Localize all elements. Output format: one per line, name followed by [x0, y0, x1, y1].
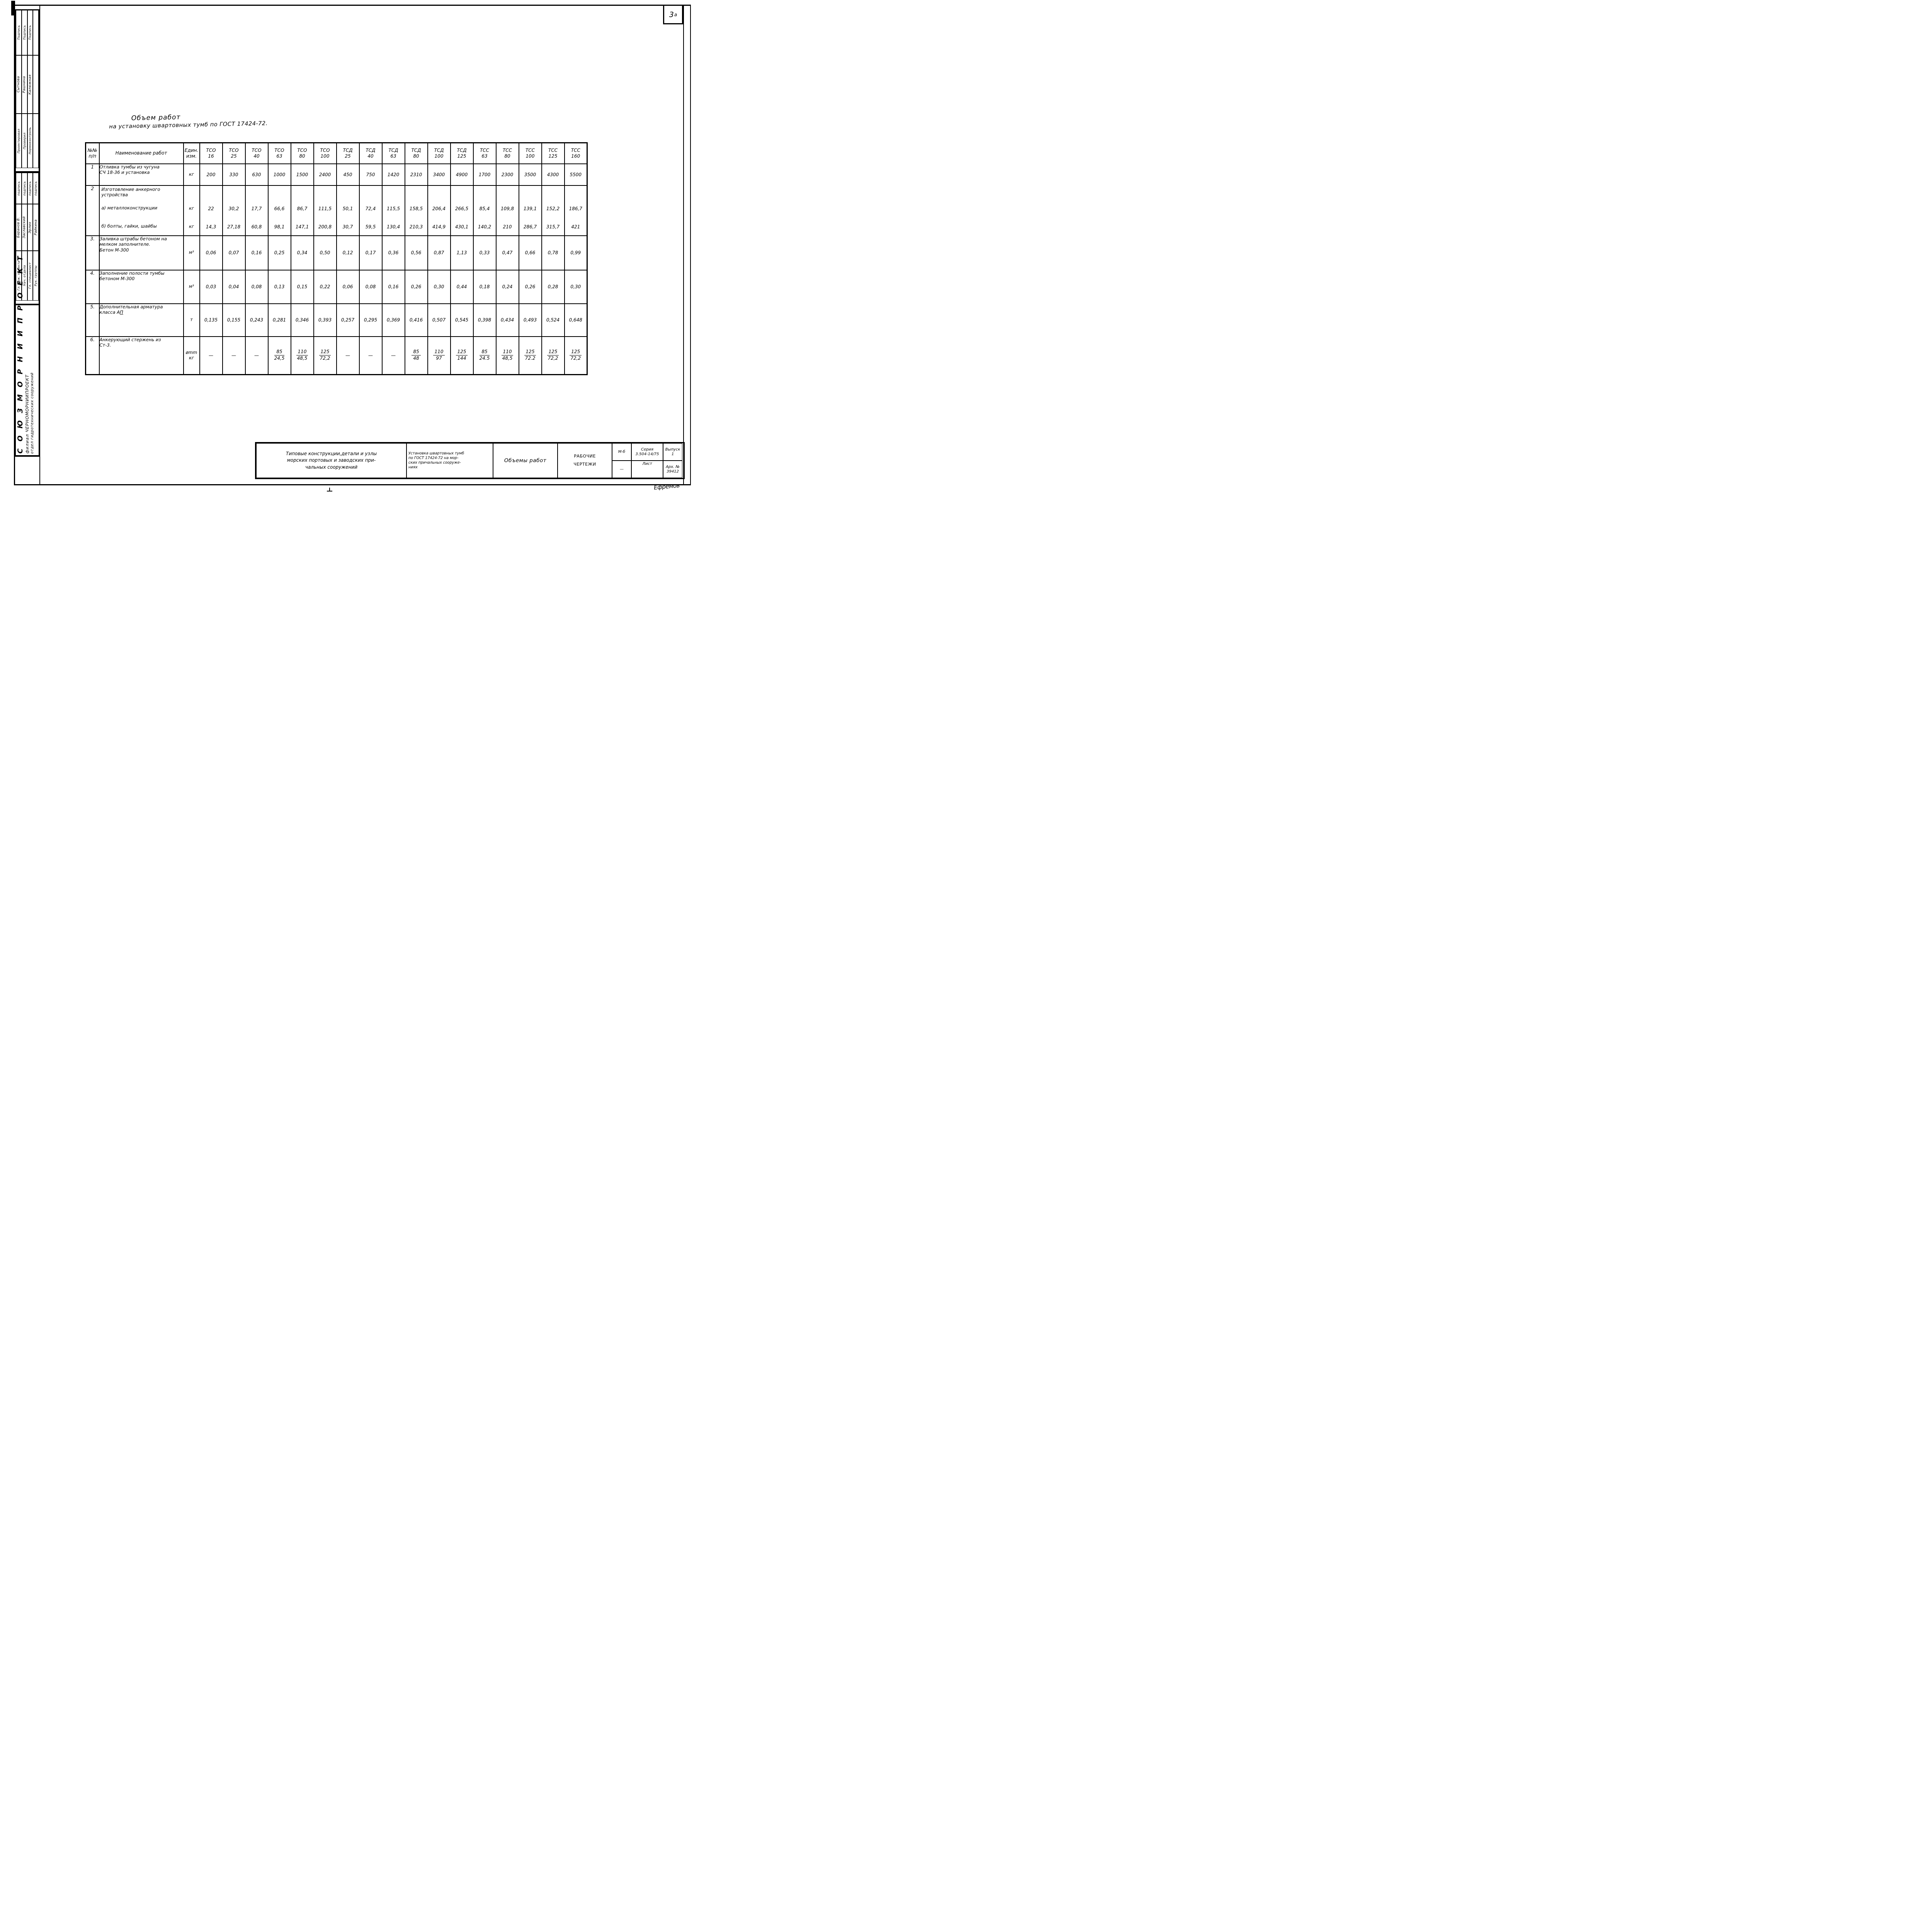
- fraction-denominator: 144: [456, 355, 468, 361]
- row2-value-wrap: 139,1286,7: [519, 187, 541, 235]
- table-cell: 0,07: [223, 236, 245, 270]
- cell-value: 27,18: [223, 224, 245, 230]
- signoff-name: Райкина: [34, 219, 38, 235]
- table-cell: —: [245, 337, 268, 375]
- header-type: ТСД80: [405, 143, 428, 164]
- fraction-value: 12572,2: [570, 349, 582, 361]
- fraction-numerator: 110: [433, 349, 445, 355]
- cell-value: 17,7: [246, 206, 268, 211]
- header-type: ТСД63: [382, 143, 405, 164]
- signoff-name: Заславский: [22, 216, 26, 238]
- row2-value-wrap: 72,459,5: [360, 187, 382, 235]
- table-cell: 0,26: [405, 270, 428, 304]
- cell-value: 130,4: [383, 224, 405, 230]
- table-row: 2Изготовление анкерногоустройстваа) мета…: [86, 185, 587, 236]
- fraction-value: 8524,5: [274, 349, 285, 361]
- row-name: Изготовление анкерногоустройстваа) метал…: [99, 185, 184, 236]
- row2-value-wrap: 17,760,8: [246, 187, 268, 235]
- table-row: 5.Дополнительная арматуракласса АПт0,135…: [86, 304, 587, 337]
- table-cell: 2400: [314, 164, 337, 185]
- table-cell: 0,155: [223, 304, 245, 337]
- signoff-role-cell: Гл. специалист: [27, 251, 33, 301]
- stamp-object: Установка швартовных тумбпо ГОСТ 17424-7…: [406, 443, 493, 478]
- cell-value: 109,8: [497, 206, 519, 211]
- table-cell: —: [382, 337, 405, 375]
- row2-value-wrap: 158,5210,3: [405, 187, 427, 235]
- row2-value-wrap: 85,4140,2: [474, 187, 496, 235]
- table-cell: —: [337, 337, 359, 375]
- sheet-label-text: Лист: [642, 462, 652, 466]
- cell-value: 200,8: [314, 224, 336, 230]
- underlined-suffix: П: [120, 310, 123, 315]
- cell-value: 266,5: [451, 206, 473, 211]
- row2-value-wrap: 86,7147,1: [291, 187, 313, 235]
- fraction-denominator: 48,5: [502, 355, 514, 361]
- row-name: Анкерующий стержень изСт-3.: [99, 337, 184, 375]
- header-type: ТСС63: [473, 143, 496, 164]
- table-cell: 0,369: [382, 304, 405, 337]
- page-number-suffix: а: [674, 12, 677, 17]
- cell-value: 286,7: [519, 224, 541, 230]
- table-cell: 0,346: [291, 304, 314, 337]
- frame-bottom: [14, 484, 691, 485]
- table-cell: 0,12: [337, 236, 359, 270]
- header-type: ТСС100: [519, 143, 542, 164]
- fraction-value: 11097: [433, 349, 445, 361]
- header-type: ТСО25: [223, 143, 245, 164]
- fraction-numerator: 125: [570, 349, 582, 355]
- row-number: 6.: [86, 337, 99, 375]
- signoff-name: Рашнина: [22, 76, 26, 93]
- fraction-numerator: 85: [480, 349, 490, 355]
- table-cell: 0,03: [200, 270, 223, 304]
- header-num: №№п/п: [86, 143, 99, 164]
- series-value-text: 3.504-14/75: [635, 452, 659, 457]
- signoff-role: Гл. специалист: [28, 262, 32, 289]
- row-unit: ømmкг: [184, 337, 200, 375]
- signoff-role: Рук. группы: [34, 265, 37, 286]
- strip-right-border: [39, 5, 40, 485]
- cell-value: 206,4: [428, 206, 450, 211]
- table-cell: 72,459,5: [359, 185, 382, 236]
- table-cell: 0,16: [382, 270, 405, 304]
- table-cell: 0,36: [382, 236, 405, 270]
- sub-unit: кг: [184, 206, 199, 211]
- fraction-numerator: 110: [502, 349, 514, 355]
- text-line: ских причальных сооруже-: [408, 461, 461, 465]
- header-unit: Един.изм.: [184, 143, 200, 164]
- signoff-sign: Подпись: [28, 25, 32, 40]
- table-cell: 152,2315,7: [542, 185, 565, 236]
- table-cell: 0,87: [428, 236, 451, 270]
- row2-name-wrap: Изготовление анкерногоустройстваа) метал…: [100, 186, 183, 234]
- row-name: Заливка штрабы бетоном намелком заполнит…: [99, 236, 184, 270]
- organization-department: отдел гидротехнических сооружений: [30, 372, 34, 454]
- strip-divider: [15, 456, 39, 457]
- cell-value: 66,6: [269, 206, 291, 211]
- cell-value: 98,1: [269, 224, 291, 230]
- stamp-issue: Выпуск 1: [663, 443, 682, 461]
- fraction-value: 12572,2: [547, 349, 559, 361]
- signoff-role-cell: Нормоконтроль: [27, 114, 33, 168]
- fraction-value: 8524.5: [480, 349, 490, 361]
- table-cell: 115,5130,4: [382, 185, 405, 236]
- cell-value: 30,7: [337, 224, 359, 230]
- table-cell: 0,22: [314, 270, 337, 304]
- page-number-box: 3а: [663, 6, 683, 24]
- row-number: 5.: [86, 304, 99, 337]
- table-cell: 206,4414,9: [428, 185, 451, 236]
- table-row: 3.Заливка штрабы бетоном намелком заполн…: [86, 236, 587, 270]
- cell-value: 315,7: [542, 224, 564, 230]
- table-cell: 139,1286,7: [519, 185, 542, 236]
- table-cell: 266,5430,1: [451, 185, 473, 236]
- table-cell: 50,130,7: [337, 185, 359, 236]
- table-cell: 0,30: [428, 270, 451, 304]
- row2-value-wrap: 50,130,7: [337, 187, 359, 235]
- table-cell: 2310: [405, 164, 428, 185]
- row-unit: кг: [184, 164, 200, 185]
- fraction-value: 11048,5: [502, 349, 514, 361]
- signoff-name-cell: Баранов В.: [16, 204, 22, 251]
- cell-value: 140,2: [474, 224, 496, 230]
- fraction-denominator: 72.2: [524, 355, 536, 361]
- fraction-denominator: 24,5: [274, 355, 285, 361]
- sub-unit: кг: [184, 224, 199, 230]
- table-cell: 0,06: [337, 270, 359, 304]
- fraction-numerator: 125: [456, 349, 468, 355]
- row2-value-wrap: 115,5130,4: [383, 187, 405, 235]
- signoff-name-cell: Эрлих: [27, 204, 33, 251]
- table-cell: 0,50: [314, 236, 337, 270]
- table-cell: 186,7421: [565, 185, 587, 236]
- organization-branch: филиал ЧЕРНОМОРНИИПРОЕКТ: [25, 374, 30, 454]
- header-row: №№п/пНаименование работЕдин.изм.ТСО16ТСО…: [86, 143, 587, 164]
- text-line: ниях: [408, 465, 418, 470]
- table-cell: 0,47: [496, 236, 519, 270]
- drawing-sheet: 3а ПодписьПодписьПодписьСытноваРашнинаКа…: [0, 0, 702, 502]
- center-tick-dot: [329, 488, 330, 491]
- scale-value-text: —: [620, 467, 624, 472]
- text-line: морских портовых и заводских при-: [287, 457, 376, 464]
- fraction-denominator: 48: [412, 355, 420, 361]
- table-cell: 2214,3: [200, 185, 223, 236]
- table-cell: 750: [359, 164, 382, 185]
- stamp-scale-value: —: [612, 461, 631, 478]
- scale-label-text: М-б: [618, 450, 625, 454]
- text-line: чальных сооружений: [305, 464, 357, 471]
- fraction-value: 12572,2: [319, 349, 331, 361]
- table-row: 4.Заполнение полости тумбыбетоном М-300м…: [86, 270, 587, 304]
- stamp-series: Серия 3.504-14/75: [631, 443, 663, 461]
- table-cell: 0,56: [405, 236, 428, 270]
- row2-group-title: Изготовление анкерногоустройства: [102, 187, 182, 198]
- header-type: ТСД40: [359, 143, 382, 164]
- table-cell: 0,34: [291, 236, 314, 270]
- signoff-role-cell: Проектировал: [16, 114, 22, 168]
- table-cell: 0,99: [565, 236, 587, 270]
- cell-value: 85,4: [474, 206, 496, 211]
- row-number: 3.: [86, 236, 99, 270]
- table-cell: 0,16: [245, 236, 268, 270]
- signoff-name: Эрлих: [28, 222, 32, 233]
- cell-value: 430,1: [451, 224, 473, 230]
- cell-value: 115,5: [383, 206, 405, 211]
- doc-type-line1: РАБОЧИЕ: [574, 452, 596, 461]
- table-cell: 0,648: [565, 304, 587, 337]
- drawing-title: Объем работ на установку швартовных тумб…: [109, 111, 268, 131]
- row2-value-wrap: 152,2315,7: [542, 187, 564, 235]
- stamp-scale-label: М-б: [612, 443, 631, 461]
- stamp-doc-type: РАБОЧИЕ ЧЕРТЕЖИ: [558, 443, 612, 478]
- table-cell: 30,227,18: [223, 185, 245, 236]
- table-cell: 8548: [405, 337, 428, 375]
- header-type: ТСС80: [496, 143, 519, 164]
- signoff-sign: подпись: [17, 181, 20, 196]
- cell-value: 50,1: [337, 206, 359, 211]
- header-type: ТСД25: [337, 143, 359, 164]
- cell-value: 210,3: [405, 224, 427, 230]
- work-table: №№п/пНаименование работЕдин.изм.ТСО16ТСО…: [85, 142, 588, 375]
- table-head: №№п/пНаименование работЕдин.изм.ТСО16ТСО…: [86, 143, 587, 164]
- signoff-role-cell: Рук. группы: [33, 251, 39, 301]
- header-type: ТСД100: [428, 143, 451, 164]
- title-block: Типовые конструкции,детали и узлыморских…: [255, 442, 685, 479]
- table-cell: 11097: [428, 337, 451, 375]
- row-number: 4.: [86, 270, 99, 304]
- table-cell: 0,545: [451, 304, 473, 337]
- table-cell: 85,4140,2: [473, 185, 496, 236]
- table-cell: 0,507: [428, 304, 451, 337]
- fraction-denominator: 48,5: [296, 355, 308, 361]
- table-cell: 12572,2: [314, 337, 337, 375]
- table-cell: 0,44: [451, 270, 473, 304]
- row2-value-wrap: 266,5430,1: [451, 187, 473, 235]
- row2-value-wrap: 186,7421: [565, 187, 587, 235]
- fraction-denominator: 72,2: [547, 355, 559, 361]
- table-cell: 11048,5: [496, 337, 519, 375]
- signoff-role-cell: Проверил: [22, 114, 27, 168]
- signoff-name-cell: Райкина: [33, 204, 39, 251]
- frame-right-inner: [683, 5, 684, 485]
- fraction-numerator: 125: [524, 349, 536, 355]
- signoff-name-cell: Сытнова: [16, 55, 22, 114]
- table-cell: 0,66: [519, 236, 542, 270]
- row-name: Дополнительная арматуракласса АП: [99, 304, 184, 337]
- signoff-name: Баранов В.: [17, 217, 20, 238]
- cell-value: 139,1: [519, 206, 541, 211]
- cell-value: 72,4: [360, 206, 382, 211]
- row2-sub-label: б) болты, гайки, шайбы: [100, 223, 183, 229]
- table-cell: 0,17: [359, 236, 382, 270]
- signoff-role: Нормоконтроль: [28, 127, 32, 154]
- table-cell: 111,5200,8: [314, 185, 337, 236]
- issue-value-text: 1: [672, 452, 674, 457]
- header-name: Наименование работ: [99, 143, 184, 164]
- table-cell: 0,393: [314, 304, 337, 337]
- table-cell: 0,26: [519, 270, 542, 304]
- stamp-sheet-title: Объемы работ: [493, 443, 558, 478]
- table-cell: 1500: [291, 164, 314, 185]
- row2-value-wrap: 206,4414,9: [428, 187, 450, 235]
- text-line: по ГОСТ 17424-72 на мор-: [408, 456, 459, 461]
- table-cell: 0,30: [565, 270, 587, 304]
- table-cell: 0,524: [542, 304, 565, 337]
- signoff-name-cell: Заславский: [22, 204, 27, 251]
- table-cell: 0,25: [268, 236, 291, 270]
- organization-block: С О Ю З М О Р Н И И П Р О Е К Т филиал Ч…: [15, 304, 39, 456]
- table-cell: 0,08: [245, 270, 268, 304]
- series-label-text: Серия: [641, 447, 653, 452]
- table-cell: 0,06: [200, 236, 223, 270]
- table-cell: 12572.2: [519, 337, 542, 375]
- issue-label-text: Выпуск: [665, 447, 680, 452]
- cell-value: 59,5: [360, 224, 382, 230]
- header-type: ТСС125: [542, 143, 565, 164]
- table-cell: —: [359, 337, 382, 375]
- table-cell: 8524.5: [473, 337, 496, 375]
- center-tick: [327, 491, 332, 492]
- table-cell: 0,257: [337, 304, 359, 337]
- fraction-denominator: 72,2: [570, 355, 582, 361]
- table-row: 1Отливка тумбы из чугунаСЧ 18-36 и устан…: [86, 164, 587, 185]
- fraction-numerator: 125: [319, 349, 331, 355]
- table-cell: 12572,2: [565, 337, 587, 375]
- fraction-denominator: 97: [433, 355, 445, 361]
- row2-value-wrap: 66,698,1: [269, 187, 291, 235]
- signoff-name-cell: [33, 55, 39, 114]
- fraction-numerator: 85: [274, 349, 285, 355]
- row-unit: т: [184, 304, 200, 337]
- header-type: ТСО16: [200, 143, 223, 164]
- table-cell: 0,398: [473, 304, 496, 337]
- header-type: ТСС160: [565, 143, 587, 164]
- table-cell: 125144: [451, 337, 473, 375]
- table-cell: 330: [223, 164, 245, 185]
- table-cell: 12572,2: [542, 337, 565, 375]
- table-cell: —: [223, 337, 245, 375]
- signoff-sign: Подпись: [23, 25, 26, 40]
- table-cell: 8524,5: [268, 337, 291, 375]
- table-cell: 0,493: [519, 304, 542, 337]
- table-cell: 0,33: [473, 236, 496, 270]
- fraction-numerator: 110: [296, 349, 308, 355]
- table-cell: 450: [337, 164, 359, 185]
- row-number: 1: [86, 164, 99, 185]
- row-name: Заполнение полости тумбыбетоном М-300: [99, 270, 184, 304]
- cell-value: 158,5: [405, 206, 427, 211]
- row2-unit-wrap: кгкг: [184, 187, 199, 235]
- row2-value-wrap: 111,5200,8: [314, 187, 336, 235]
- table-cell: 3400: [428, 164, 451, 185]
- signoff-role: Проверил: [23, 133, 26, 149]
- table-cell: 630: [245, 164, 268, 185]
- frame-top: [14, 5, 691, 6]
- cell-value: 14,3: [200, 224, 222, 230]
- table-cell: 1000: [268, 164, 291, 185]
- scan-artifact-corner: [11, 1, 15, 15]
- frame-right-outer: [690, 5, 691, 485]
- arch-label-text: Арх. №: [666, 465, 680, 469]
- fraction-denominator: 72,2: [319, 355, 331, 361]
- row2-value-wrap: 30,227,18: [223, 187, 245, 235]
- table-cell: 5500: [565, 164, 587, 185]
- table-cell: 86,7147,1: [291, 185, 314, 236]
- signoff-sign-cell: подпись: [22, 173, 27, 204]
- signoff-group-1: ПодписьПодписьПодписьСытноваРашнинаКалюж…: [15, 9, 39, 172]
- row-name: Отливка тумбы из чугунаСЧ 18-36 и устано…: [99, 164, 184, 185]
- cell-value: 86,7: [291, 206, 313, 211]
- cell-value: 30,2: [223, 206, 245, 211]
- table-cell: 4300: [542, 164, 565, 185]
- table-cell: 66,698,1: [268, 185, 291, 236]
- text-line: Установка швартовных тумб: [408, 451, 464, 456]
- table-cell: 0,281: [268, 304, 291, 337]
- table-cell: 158,5210,3: [405, 185, 428, 236]
- table-cell: 1700: [473, 164, 496, 185]
- table-cell: 0,04: [223, 270, 245, 304]
- row2-value-wrap: 2214,3: [200, 187, 222, 235]
- cell-value: 414,9: [428, 224, 450, 230]
- fraction-value: 12572.2: [524, 349, 536, 361]
- table-cell: 0,28: [542, 270, 565, 304]
- signoff-sign-cell: Подпись: [16, 10, 22, 55]
- table-cell: 0,434: [496, 304, 519, 337]
- table-cell: 0,295: [359, 304, 382, 337]
- table-cell: 0,15: [291, 270, 314, 304]
- page-number: 3: [669, 10, 674, 19]
- cell-value: 111,5: [314, 206, 336, 211]
- signoff-sign-cell: подпись: [16, 173, 22, 204]
- signoff-sign: подпись: [28, 181, 32, 196]
- cell-value: 421: [565, 224, 587, 230]
- table-cell: 0,416: [405, 304, 428, 337]
- table-cell: 0,13: [268, 270, 291, 304]
- row-unit: м³: [184, 270, 200, 304]
- header-type: ТСО40: [245, 143, 268, 164]
- signoff-sign-cell: Подпись: [27, 10, 33, 55]
- fraction-value: 8548: [412, 349, 420, 361]
- cell-value: 22: [200, 206, 222, 211]
- signoff-role: Проектировал: [17, 129, 20, 153]
- cell-value: 210: [497, 224, 519, 230]
- row2-sub-label: а) металлоконструкции: [100, 205, 183, 211]
- signoff-role-cell: [33, 114, 39, 168]
- table-cell: 109,8210: [496, 185, 519, 236]
- header-type: ТСД125: [451, 143, 473, 164]
- signoff-sign-cell: подпись: [33, 173, 39, 204]
- signoff-name: Сытнова: [17, 76, 20, 92]
- fraction-numerator: 85: [412, 349, 420, 355]
- signoff-name-cell: Рашнина: [22, 55, 27, 114]
- header-type: ТСО63: [268, 143, 291, 164]
- table-cell: 3500: [519, 164, 542, 185]
- row2-value-wrap: 109,8210: [497, 187, 519, 235]
- signoff-sign-cell: [33, 10, 39, 55]
- cell-value: 186,7: [565, 206, 587, 211]
- table-cell: 1420: [382, 164, 405, 185]
- text-line: Типовые конструкции,детали и узлы: [286, 451, 377, 457]
- row-unit: кгкг: [184, 185, 200, 236]
- table-row: 6.Анкерующий стержень изСт-3.ømmкг———852…: [86, 337, 587, 375]
- table-cell: —: [200, 337, 223, 375]
- fraction-numerator: 125: [547, 349, 559, 355]
- signoff-sign: подпись: [23, 181, 26, 196]
- table-cell: 2300: [496, 164, 519, 185]
- table-cell: 0,24: [496, 270, 519, 304]
- arch-value-text: 39412: [667, 469, 679, 474]
- table-cell: 200: [200, 164, 223, 185]
